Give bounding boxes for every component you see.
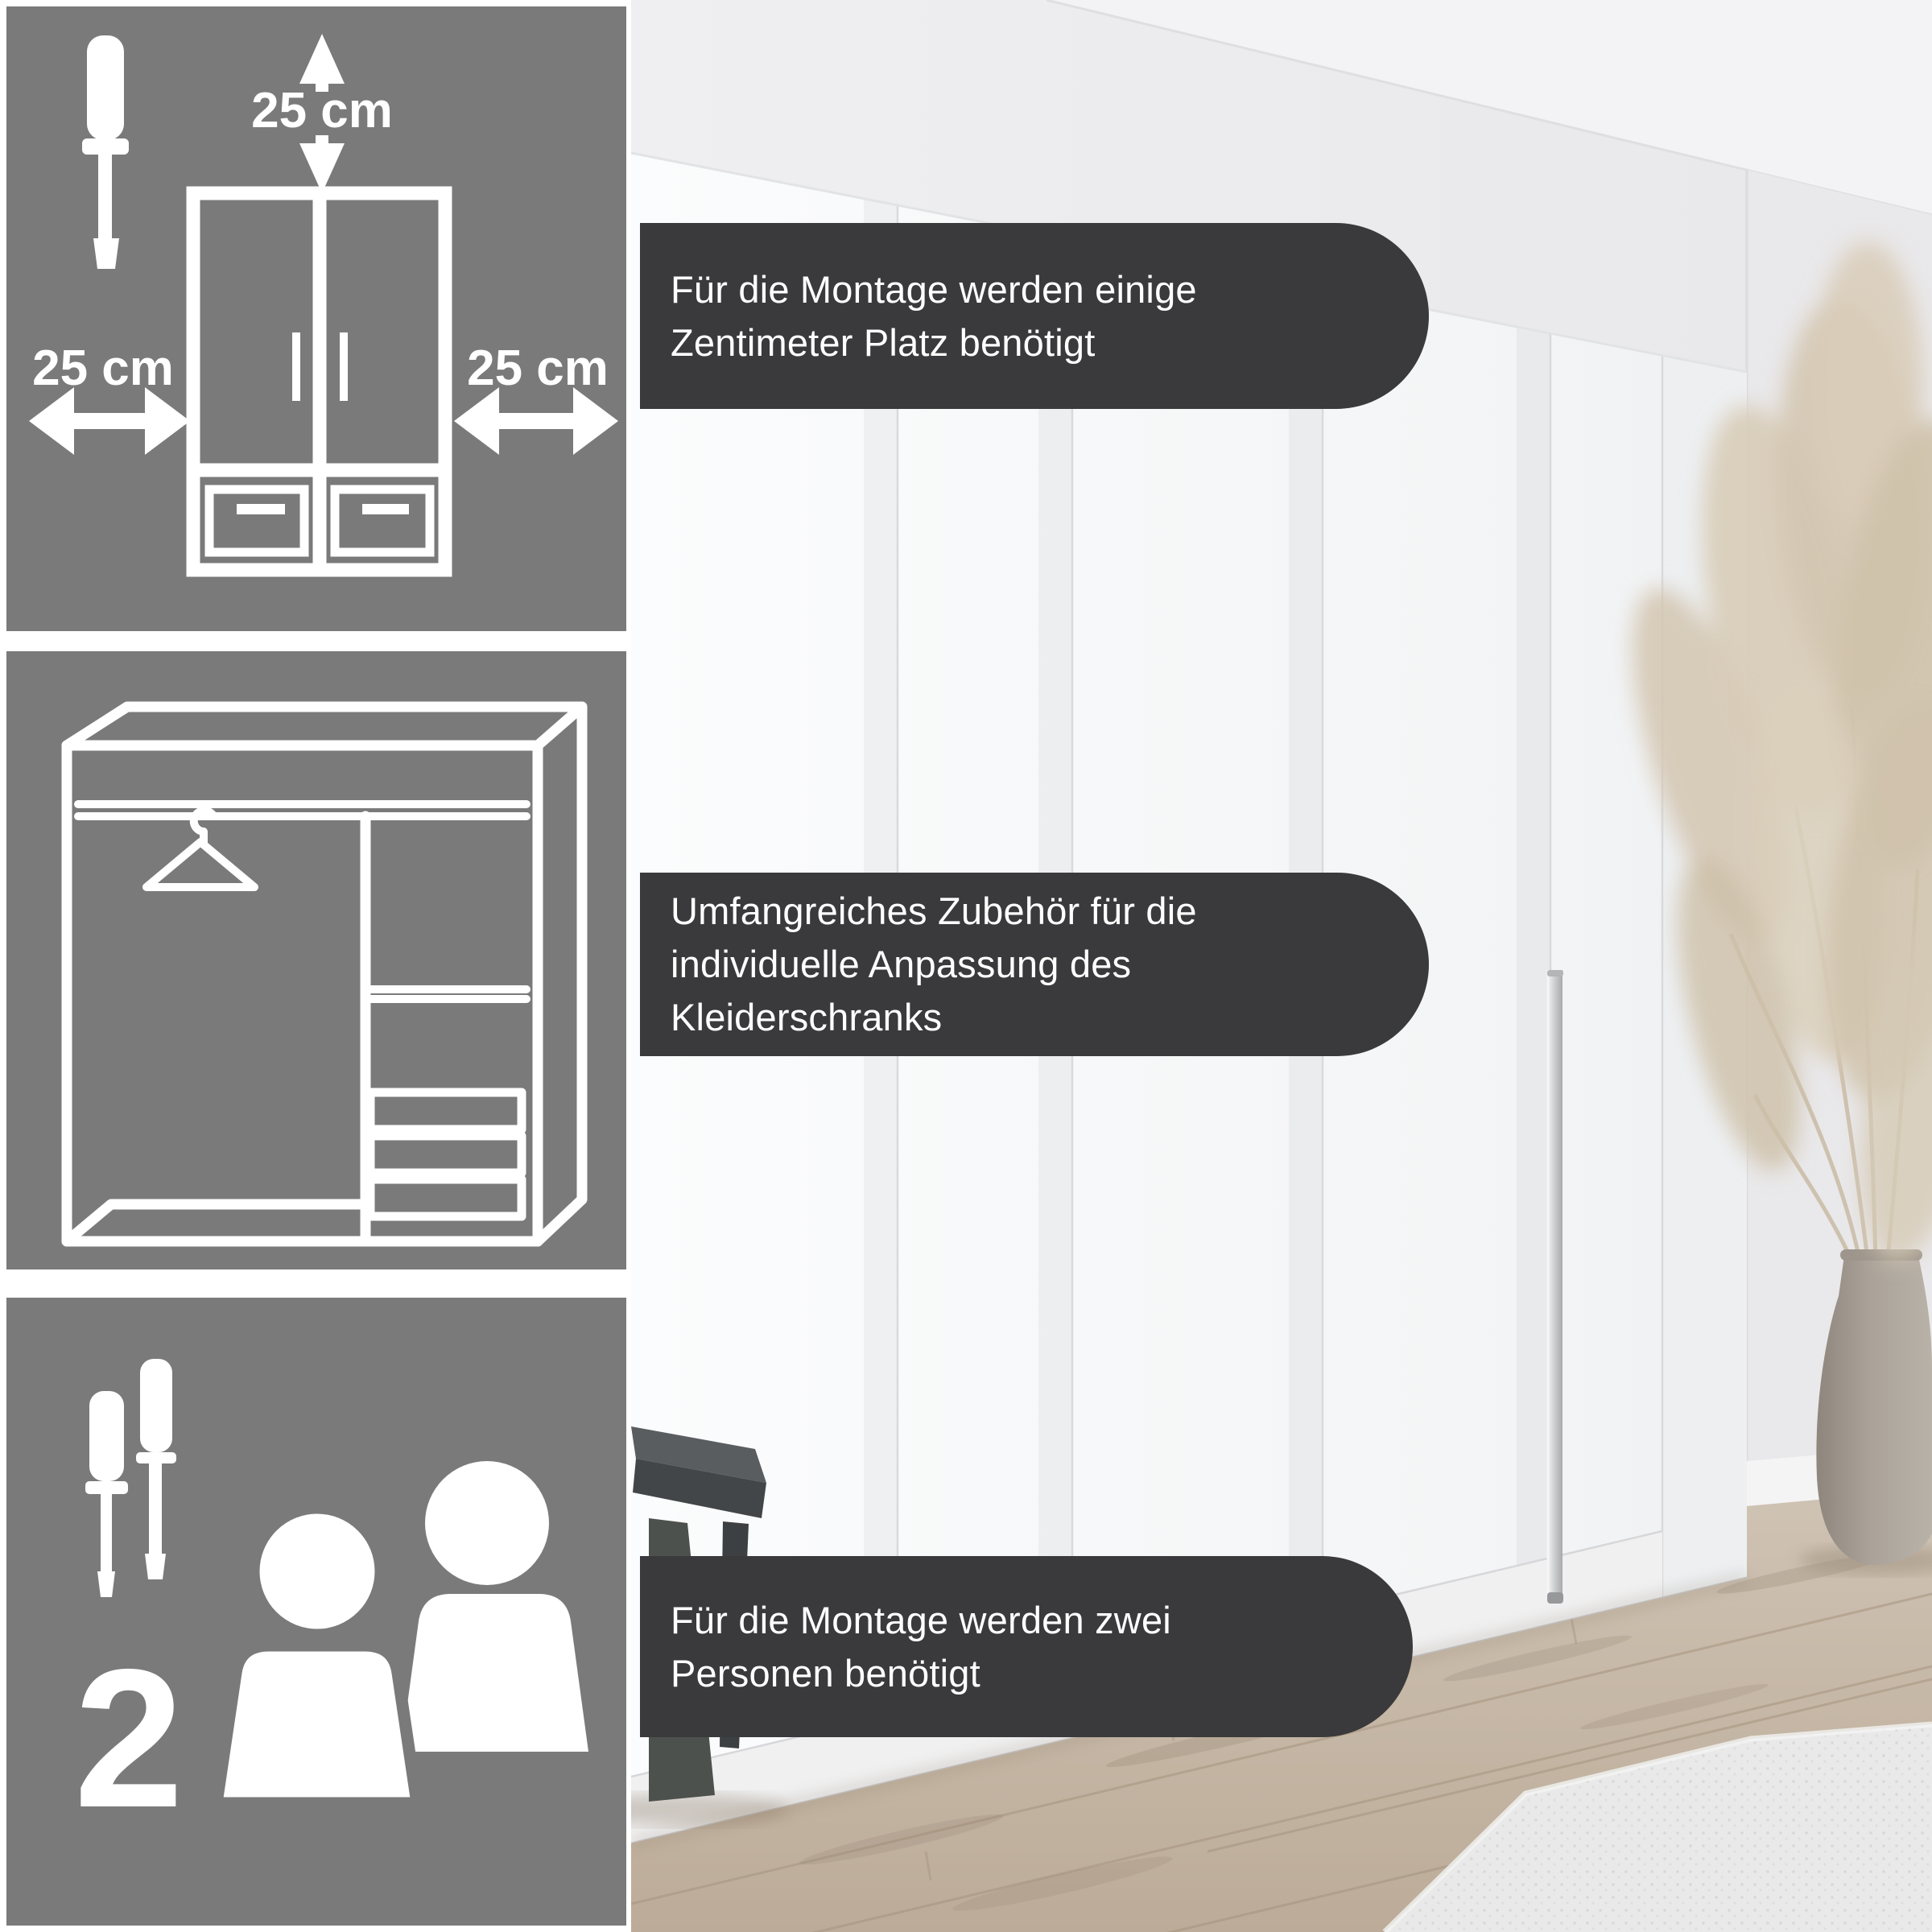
person-icon — [401, 1461, 588, 1752]
callout-text-line: individuelle Anpassung des — [671, 938, 1429, 991]
person-icon — [217, 1508, 417, 1803]
wardrobe-clearance-icon: 25 cm 25 cm 25 cm — [6, 6, 626, 631]
callout-text-line: Personen benötigt — [671, 1647, 1413, 1700]
clearance-right-label: 25 cm — [467, 341, 609, 396]
callout-text-line: Kleiderschranks — [671, 991, 1429, 1044]
person-count: 2 — [74, 1628, 184, 1848]
right-shelf — [365, 989, 526, 999]
panel-interior — [6, 651, 626, 1269]
arrow-left-right-icon — [454, 387, 618, 455]
clearance-left-label: 25 cm — [32, 341, 174, 396]
top-shelf — [78, 804, 526, 816]
cabinet-frame — [67, 707, 582, 1241]
screwdriver-icon — [82, 35, 129, 269]
callout-text-line: Zentimeter Platz benötigt — [671, 316, 1429, 369]
drawers-icon — [370, 1092, 522, 1216]
panel-assembly: 2 — [6, 1298, 626, 1926]
panel-clearance: 25 cm 25 cm 25 cm — [6, 6, 626, 631]
screwdriver-icon — [85, 1391, 128, 1597]
wardrobe-interior-icon — [6, 651, 626, 1269]
callout-two-persons: Für die Montage werden zwei Personen ben… — [640, 1556, 1413, 1737]
hanger-icon — [147, 811, 254, 887]
door-handle — [1547, 970, 1564, 1604]
clearance-top-label: 25 cm — [251, 83, 393, 138]
arrow-left-right-icon — [29, 387, 190, 455]
callout-accessories: Umfangreiches Zubehör für die individuel… — [640, 873, 1429, 1056]
screwdriver-icon — [136, 1359, 176, 1579]
callout-text-line: Für die Montage werden einige — [671, 263, 1429, 316]
callout-text-line: Für die Montage werden zwei — [671, 1594, 1413, 1647]
callout-text-line: Umfangreiches Zubehör für die — [671, 885, 1429, 938]
callout-clearance: Für die Montage werden einige Zentimeter… — [640, 223, 1429, 409]
assembly-icon: 2 — [6, 1298, 626, 1926]
